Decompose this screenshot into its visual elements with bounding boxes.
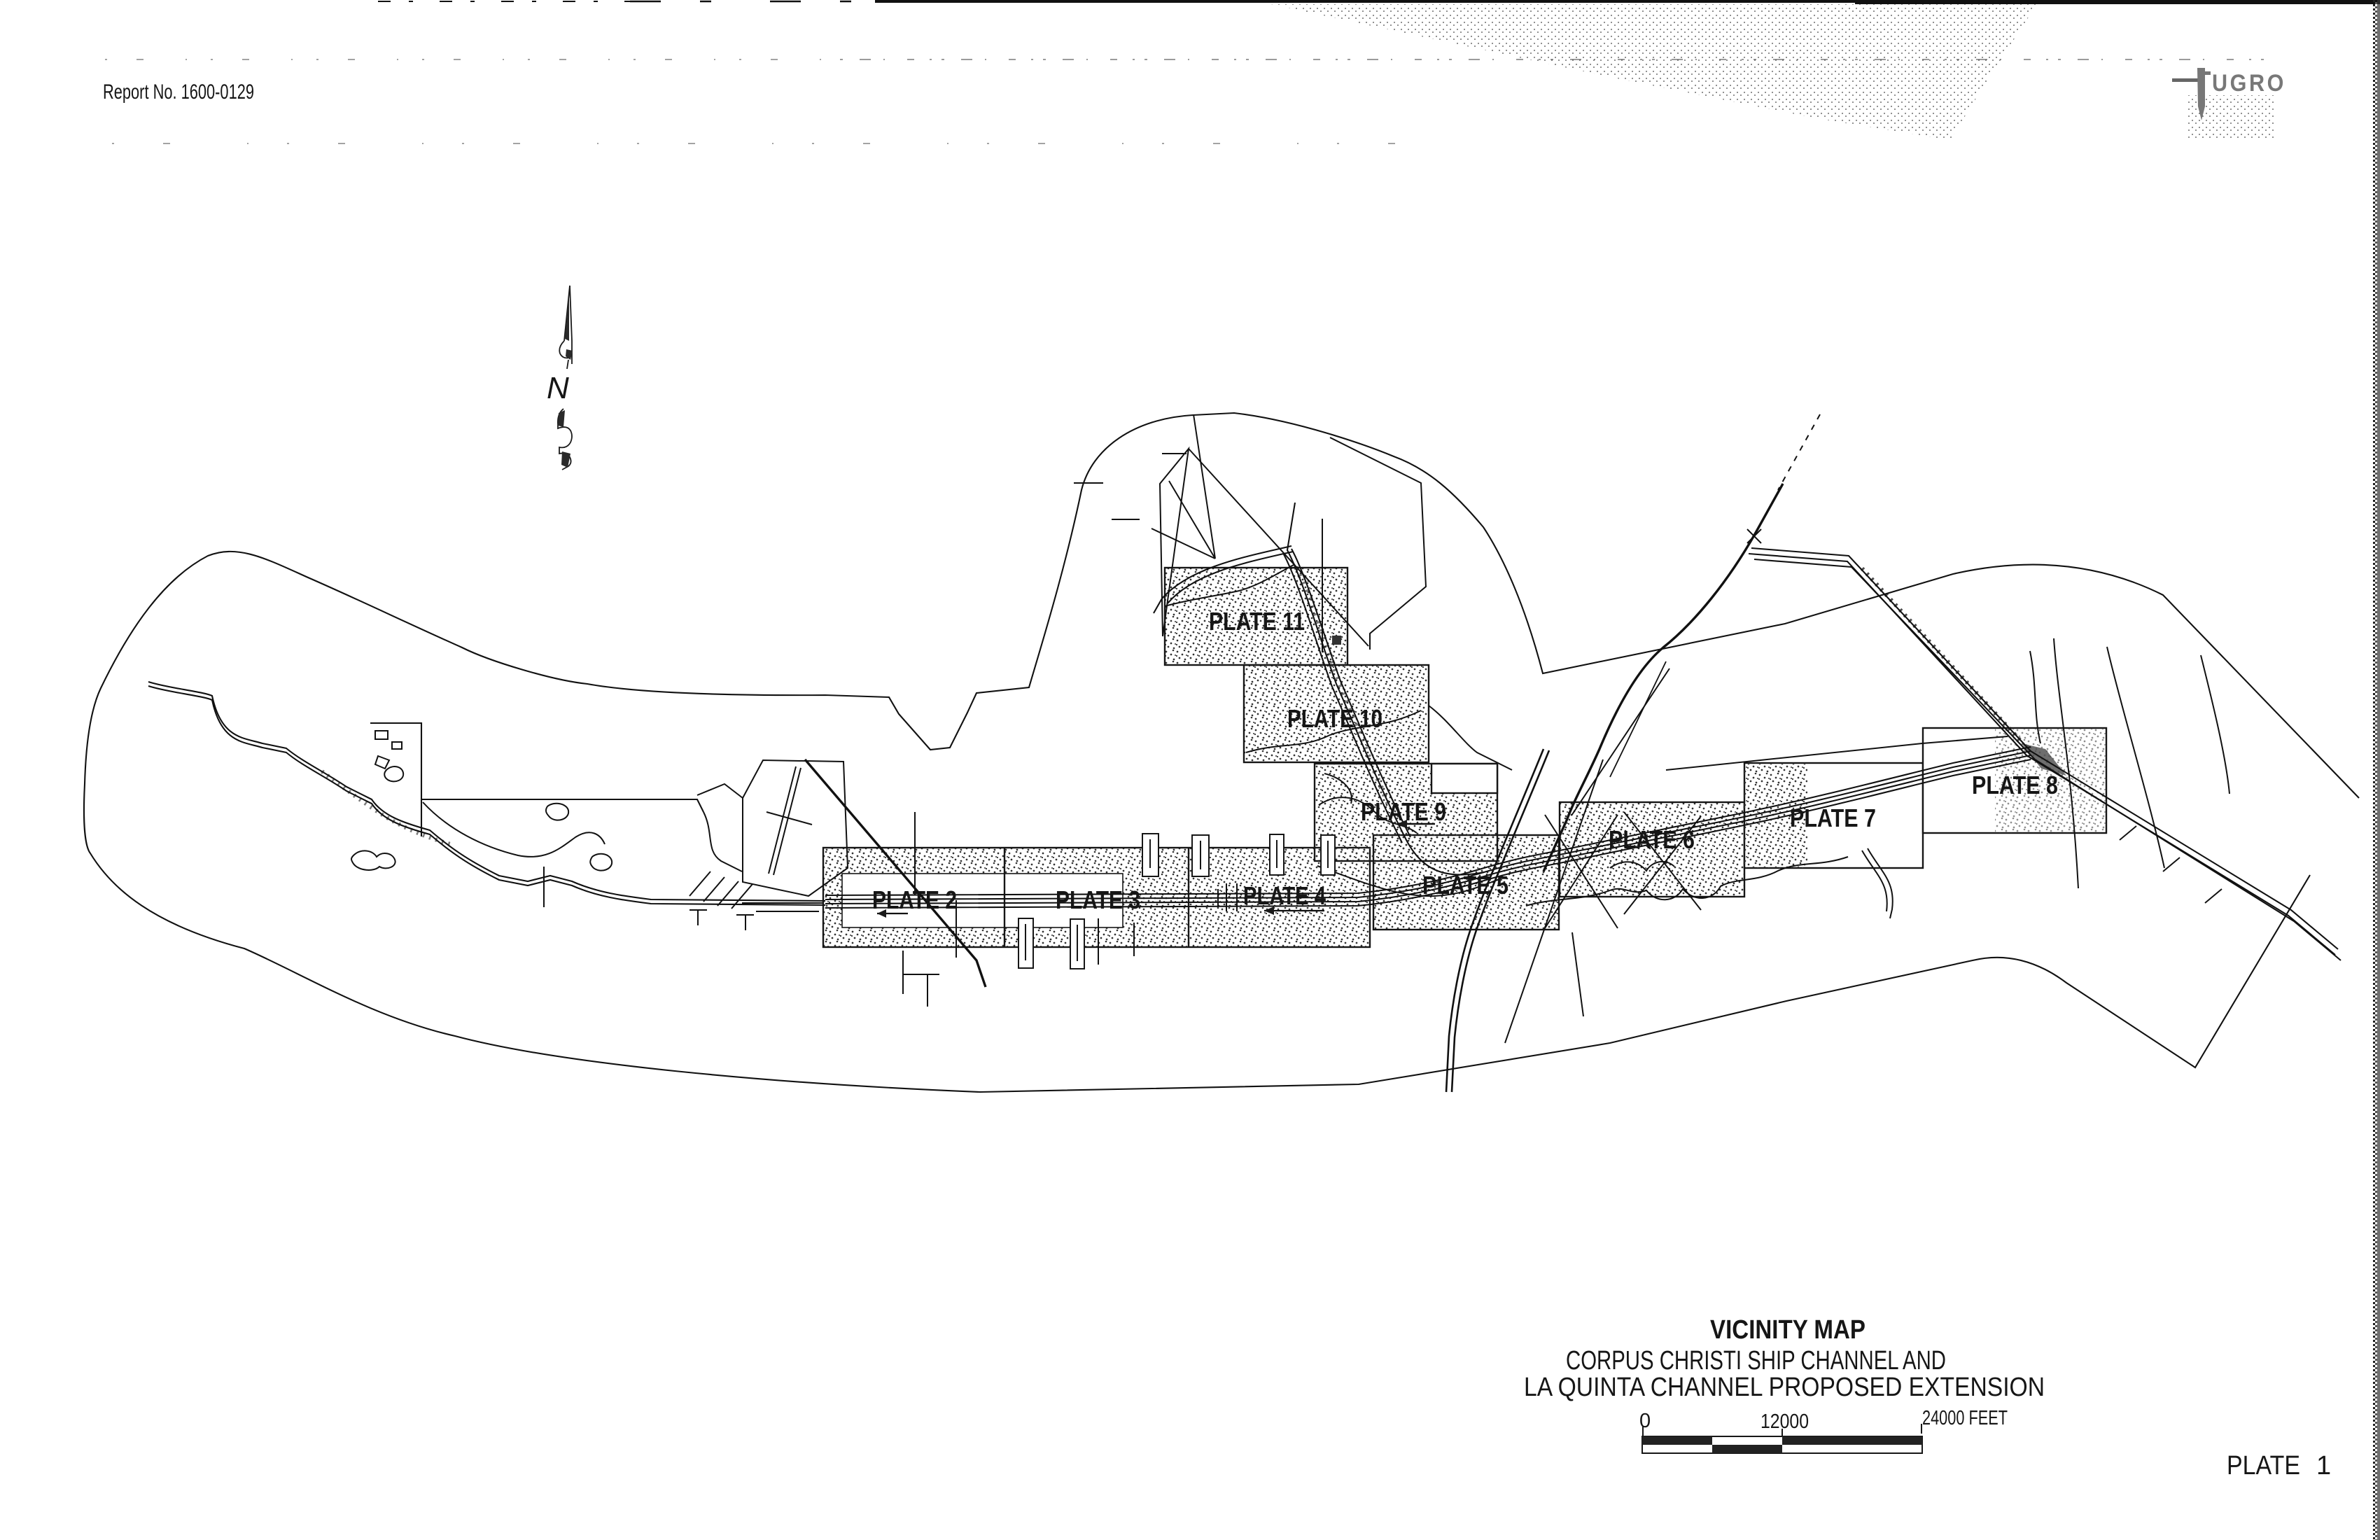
svg-text:PLATE 6: PLATE 6 [1609,825,1695,854]
svg-text:VICINITY MAP: VICINITY MAP [1710,1315,1865,1345]
svg-text:PLATE 5: PLATE 5 [1422,871,1508,899]
svg-text:PLATE: PLATE [2227,1451,2300,1480]
svg-text:24000 FEET: 24000 FEET [1922,1407,2008,1429]
svg-text:PLATE 11: PLATE 11 [1209,607,1305,636]
svg-text:1: 1 [2316,1451,2331,1480]
svg-text:0: 0 [1639,1410,1651,1432]
svg-text:PLATE 8: PLATE 8 [1972,771,2058,799]
svg-text:PLATE 7: PLATE 7 [1790,804,1876,832]
svg-text:LA QUINTA CHANNEL PROPOSED EXT: LA QUINTA CHANNEL PROPOSED EXTENSION [1524,1373,2045,1402]
svg-text:CORPUS CHRISTI SHIP CHANNEL AN: CORPUS CHRISTI SHIP CHANNEL AND [1566,1346,1946,1375]
svg-text:PLATE 10: PLATE 10 [1287,704,1382,733]
svg-text:UGRO: UGRO [2212,70,2286,97]
svg-text:N: N [547,371,569,405]
svg-text:Report No. 1600-0129: Report No. 1600-0129 [103,80,254,104]
svg-text:PLATE 2: PLATE 2 [872,885,957,914]
svg-text:PLATE 9: PLATE 9 [1361,797,1446,826]
svg-text:PLATE 4: PLATE 4 [1243,881,1326,910]
svg-text:PLATE 3: PLATE 3 [1056,885,1140,914]
svg-text:12000: 12000 [1760,1410,1809,1433]
